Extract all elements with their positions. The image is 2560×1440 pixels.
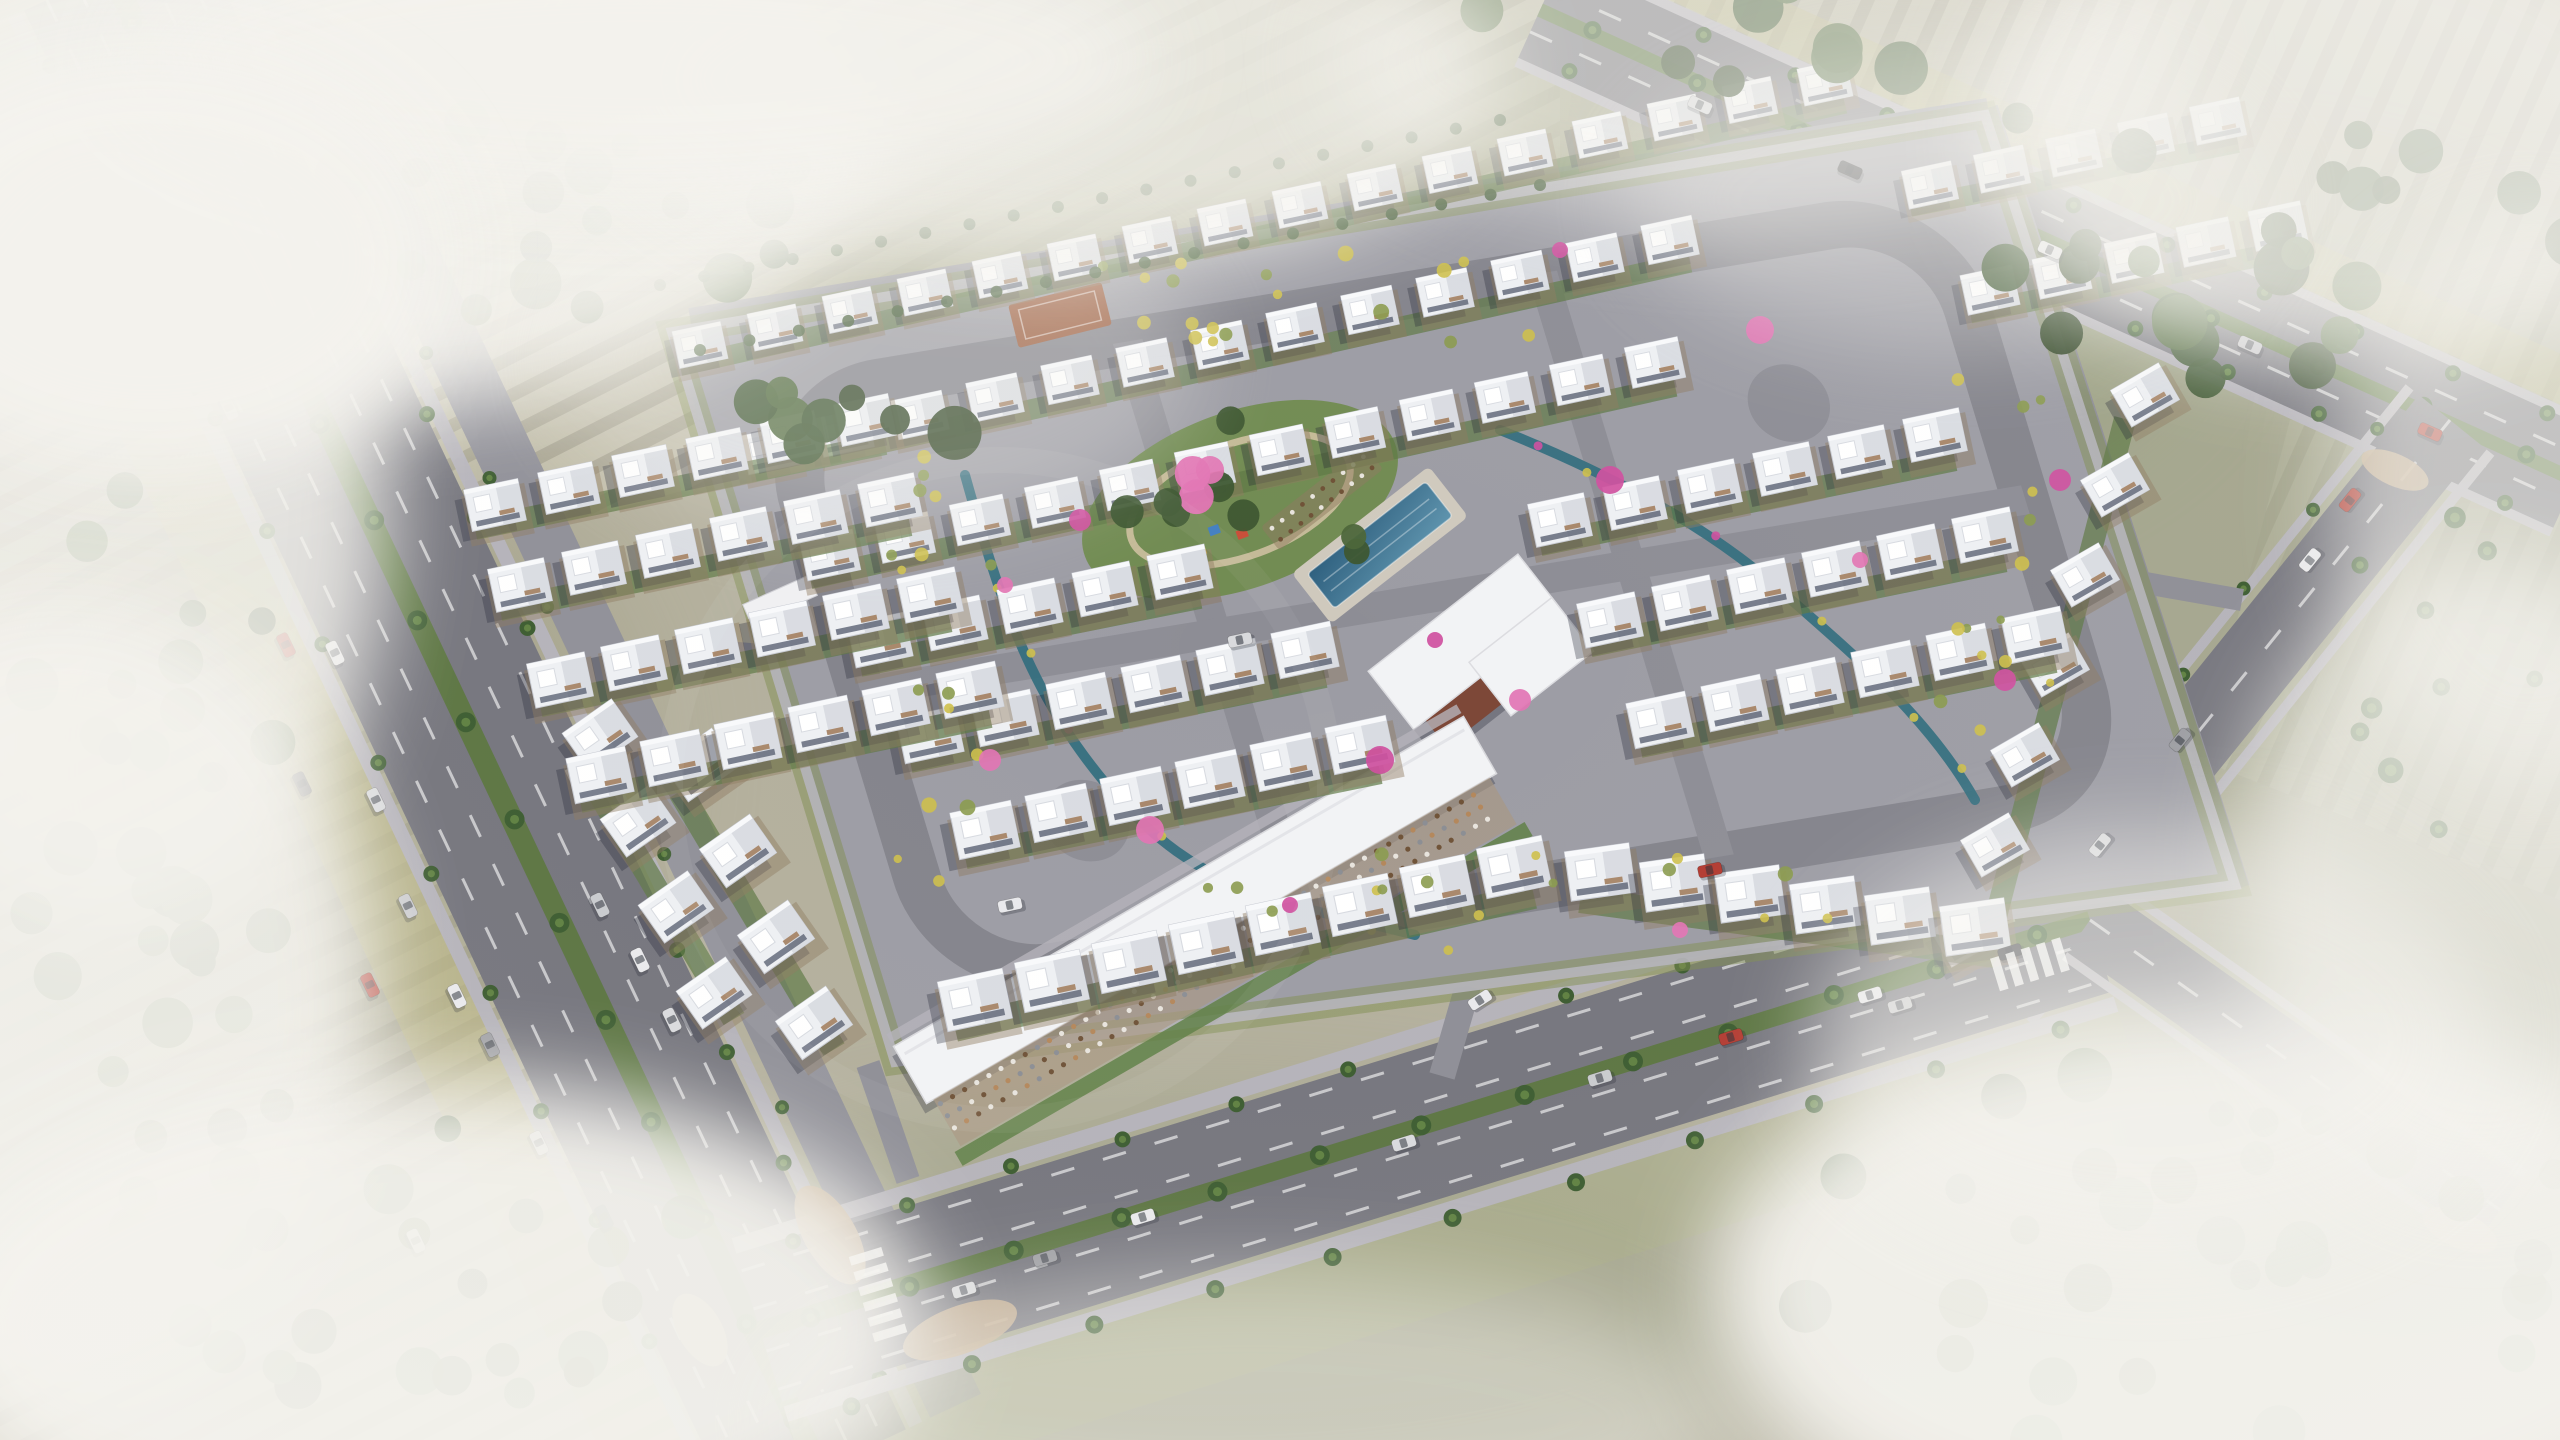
aerial-masterplan-render [0,0,2560,1440]
haze-veil [0,0,2560,1440]
atmosphere [0,0,2560,1440]
render-scene [0,0,2560,1440]
